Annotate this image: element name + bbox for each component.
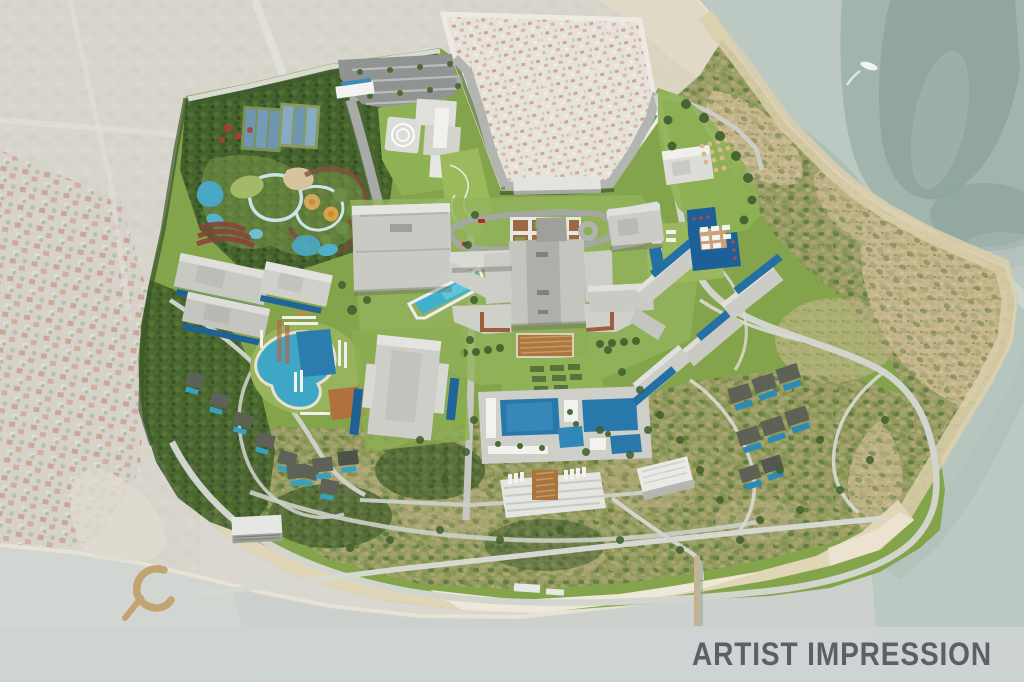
svg-text:ARTIST IMPRESSION: ARTIST IMPRESSION <box>692 636 992 672</box>
